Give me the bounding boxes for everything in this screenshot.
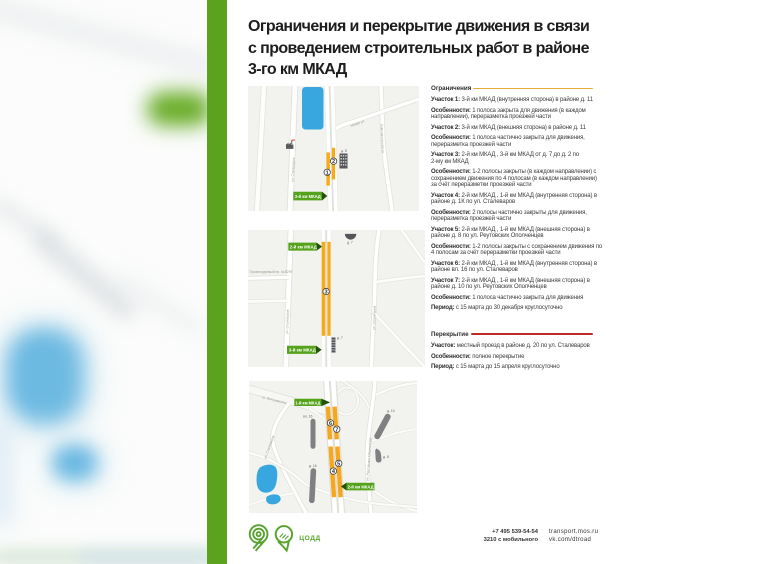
svg-text:3-й км МКАД: 3-й км МКАД bbox=[295, 193, 322, 199]
svg-text:ЦОДД: ЦОДД bbox=[299, 535, 321, 542]
svg-text:7: 7 bbox=[335, 427, 338, 433]
svg-text:д. 7: д. 7 bbox=[337, 336, 343, 340]
svg-text:д. 10: д. 10 bbox=[387, 409, 395, 413]
svg-text:6: 6 bbox=[329, 421, 332, 427]
svg-text:д. 16: д. 16 bbox=[309, 464, 317, 468]
svg-text:Проектируемый пр. №5299: Проектируемый пр. №5299 bbox=[250, 270, 293, 274]
svg-text:д. 8: д. 8 bbox=[383, 455, 389, 459]
svg-text:д. 7: д. 7 bbox=[347, 241, 353, 245]
svg-text:1-й км МКАД: 1-й км МКАД bbox=[295, 399, 321, 405]
svg-text:3-й км МКАД: 3-й км МКАД bbox=[289, 347, 317, 353]
svg-text:д. 8: д. 8 bbox=[341, 149, 347, 153]
svg-text:3: 3 bbox=[325, 290, 328, 296]
svg-text:вл. 16: вл. 16 bbox=[303, 415, 312, 419]
svg-text:5: 5 bbox=[337, 462, 340, 468]
svg-text:2: 2 bbox=[332, 159, 335, 165]
svg-text:ул. Строителей: ул. Строителей bbox=[372, 306, 377, 330]
svg-text:2-й км МКАД: 2-й км МКАД bbox=[348, 483, 375, 489]
svg-text:2-й км МКАД: 2-й км МКАД bbox=[290, 244, 318, 250]
svg-text:1: 1 bbox=[326, 170, 329, 176]
